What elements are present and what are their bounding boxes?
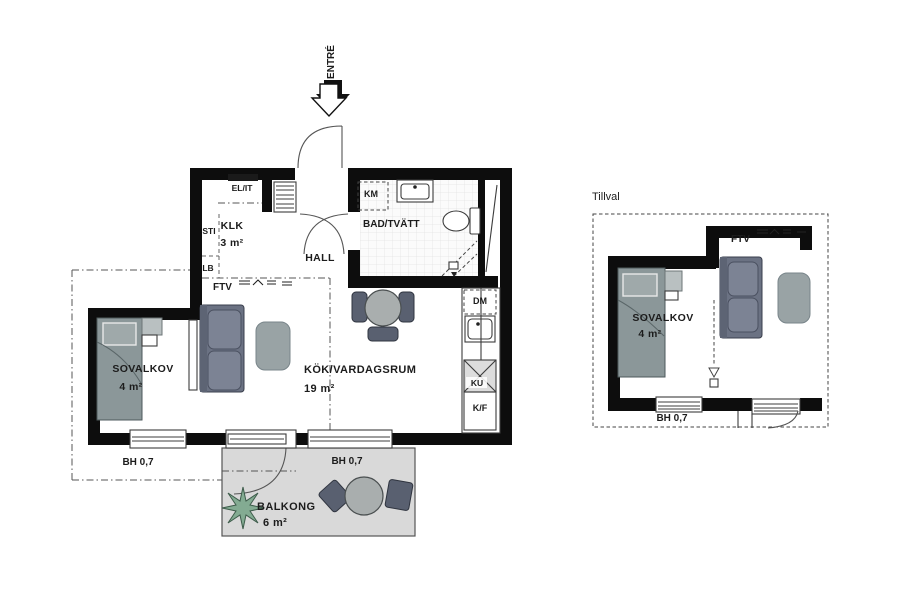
el-it-cabinet-icon: [228, 174, 258, 181]
hall-door-arcs: [300, 214, 348, 254]
balcony-door: [226, 430, 296, 448]
kitchen-living-area: 19 m²: [304, 383, 335, 395]
pillow: [623, 274, 657, 296]
ftv-label: FTV: [213, 282, 232, 293]
entry-marker: ENTRÉ: [298, 45, 350, 168]
entry-label: ENTRÉ: [324, 45, 337, 79]
el-it-label: EL/IT: [232, 183, 254, 193]
dm-label: DM: [473, 296, 487, 306]
window-left: [130, 430, 186, 448]
balcony-chair-right: [385, 479, 413, 511]
dining-chair-bottom: [368, 327, 398, 341]
sofa: [200, 305, 244, 392]
option-alcove-label: SOVALKOV: [632, 312, 693, 324]
alcove-area: 4 m²: [119, 381, 142, 393]
pillow: [103, 323, 136, 345]
km-label: KM: [364, 189, 378, 199]
option-window-height-label: BH 0,7: [656, 413, 688, 424]
window-right: [308, 430, 392, 448]
sink-icon: [397, 180, 433, 202]
hob-icon: KU: [464, 360, 496, 392]
side-table-shelf: [142, 335, 157, 346]
balcony-label: BALKONG: [257, 501, 315, 513]
dining-table: [365, 290, 401, 326]
sleeping-alcove: SOVALKOV 4 m²: [97, 305, 290, 420]
kf-label: K/F: [473, 403, 488, 413]
kitchen: DM KU K/F: [462, 288, 500, 433]
option-window-right: [752, 399, 800, 414]
option-window-left: [656, 397, 702, 412]
tv-outlet: FTV: [213, 280, 292, 293]
option-door-leaf: [738, 411, 752, 428]
floorplan-drawing: BALKONG 6 m² BH 0,7 ENTRÉ EL/IT STI LB K…: [0, 0, 900, 600]
kitchen-living-room: KÖK/VARDAGSRUM 19 m²: [304, 290, 416, 395]
option-title: Tillval: [592, 191, 620, 203]
sofa-cushion: [208, 310, 241, 349]
sofa-cushion: [728, 262, 758, 296]
coat-rack-icon: [274, 182, 296, 212]
option-ftv-label: FTV: [731, 234, 750, 245]
floorplan-page: BALKONG 6 m² BH 0,7 ENTRÉ EL/IT STI LB K…: [0, 0, 900, 600]
alcove-label: SOVALKOV: [112, 363, 173, 375]
option-alcove-area: 4 m²: [638, 328, 661, 340]
main-floor-plan: BALKONG 6 m² BH 0,7 ENTRÉ EL/IT STI LB K…: [72, 45, 512, 536]
option-side-table: [665, 271, 682, 291]
ftv-symbol: [239, 280, 292, 285]
option-sofa: [720, 257, 762, 338]
rug: [256, 322, 290, 370]
option-rug: [778, 273, 810, 323]
entry-door: [298, 126, 342, 168]
balcony: BALKONG 6 m² BH 0,7: [222, 448, 415, 536]
option-floor-plan: Tillval FTV SOVALKOV 4 m²: [592, 191, 828, 428]
bath-label: BAD/TVÄTT: [363, 217, 420, 230]
balcony-area: 6 m²: [263, 517, 287, 529]
hall-label: HALL: [305, 252, 335, 264]
klk-area: 3 m²: [220, 237, 243, 249]
sofa-cushion: [208, 351, 241, 390]
window-height-label-right: BH 0,7: [331, 456, 363, 467]
sti-label: STI: [202, 226, 215, 236]
ku-label: KU: [471, 378, 483, 388]
option-side-table-shelf: [665, 291, 678, 300]
kitchen-living-label: KÖK/VARDAGSRUM: [304, 363, 416, 376]
klk-label: KLK: [221, 220, 244, 232]
lb-label: LB: [202, 263, 213, 273]
balcony-table-set: [318, 477, 413, 515]
partition-wall: [189, 320, 197, 390]
option-sliding-door-marker: [709, 300, 719, 387]
dining-set: [352, 290, 414, 341]
sofa-cushion: [728, 298, 758, 332]
sofa-back: [720, 257, 727, 338]
window-height-label-left: BH 0,7: [122, 457, 154, 468]
balcony-table: [345, 477, 383, 515]
klk-room: EL/IT STI LB KLK 3 m²: [202, 174, 258, 278]
side-table: [142, 318, 162, 335]
sofa-back: [200, 305, 207, 392]
